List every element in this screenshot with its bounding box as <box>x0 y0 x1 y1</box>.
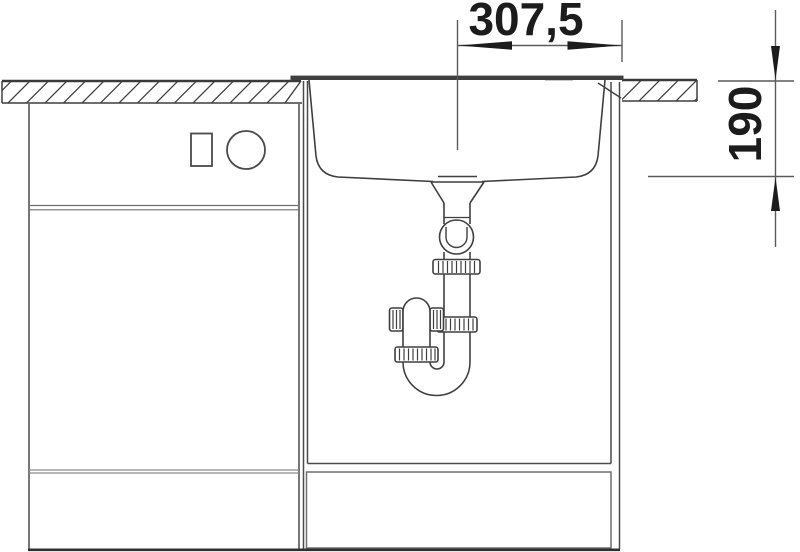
ball-joint <box>440 220 474 254</box>
arrow-up-icon <box>771 177 780 211</box>
dimension-depth-label: 190 <box>719 86 771 163</box>
dimension-width-label: 307,5 <box>468 0 583 45</box>
countertop-right <box>598 80 697 101</box>
control-knob <box>227 131 265 169</box>
worktop-cutout-edge-right <box>598 83 621 98</box>
technical-drawing-canvas: 307,5 190 <box>0 0 800 552</box>
drain-trap <box>390 182 485 396</box>
dimension-horizontal: 307,5 <box>458 0 623 150</box>
countertop-left <box>2 81 302 103</box>
bowl-left-wall <box>309 80 433 182</box>
compression-nut-upper <box>433 260 480 275</box>
arrow-down-icon <box>771 46 780 80</box>
sink-cabinet <box>304 81 620 549</box>
dimension-vertical: 190 <box>648 10 794 247</box>
trap-u-bend <box>403 362 470 396</box>
sink-installation-diagram: 307,5 190 <box>0 0 800 552</box>
sink-cabinet-plinth <box>307 472 612 548</box>
compression-nut-outlet <box>395 347 438 362</box>
drain-funnel <box>431 182 484 203</box>
left-cabinet <box>29 104 299 549</box>
outlet-dome-cap <box>403 298 430 332</box>
control-switch <box>191 134 212 167</box>
bowl-right-wall <box>482 80 605 182</box>
